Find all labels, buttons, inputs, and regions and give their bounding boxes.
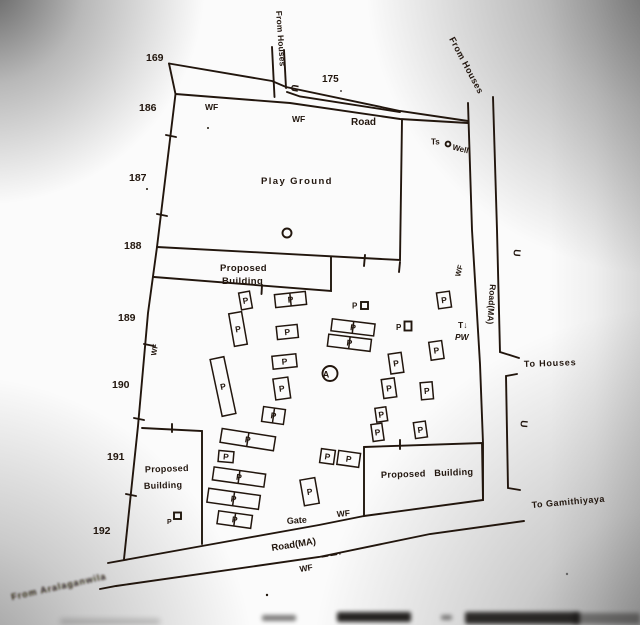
svg-text:T↓: T↓ (458, 320, 467, 330)
svg-text:Ts: Ts (431, 138, 440, 147)
svg-text:From Houses: From Houses (447, 35, 485, 95)
svg-text:P: P (378, 409, 385, 420)
svg-text:169: 169 (146, 52, 164, 64)
svg-text:Gate: Gate (286, 515, 307, 526)
svg-text:P: P (242, 295, 250, 306)
svg-text:P: P (345, 454, 352, 465)
svg-text:P: P (230, 493, 237, 504)
svg-text:P: P (244, 434, 251, 445)
svg-text:188: 188 (124, 240, 142, 252)
svg-text:WF: WF (299, 562, 314, 574)
svg-text:P: P (287, 294, 294, 305)
svg-text:P: P (424, 386, 431, 396)
svg-text:P: P (417, 424, 424, 435)
svg-text:P: P (278, 383, 285, 394)
svg-text:P: P (392, 358, 399, 369)
svg-text:To Gamithiyaya: To Gamithiyaya (531, 494, 605, 510)
svg-text:Proposed: Proposed (220, 263, 267, 274)
svg-text:Proposed Building: Proposed Building (381, 467, 474, 480)
svg-text:Road(MA): Road(MA) (271, 536, 317, 554)
svg-text:P: P (231, 514, 238, 525)
svg-text:U: U (288, 83, 300, 92)
svg-text:P: P (270, 410, 277, 421)
svg-text:Road: Road (351, 117, 376, 128)
svg-text:WF: WF (205, 102, 218, 112)
svg-text:WF: WF (292, 114, 305, 124)
svg-text:P: P (281, 356, 288, 367)
svg-text:192: 192 (93, 525, 111, 537)
svg-text:Well: Well (452, 143, 470, 156)
svg-text:190: 190 (112, 379, 130, 391)
svg-text:P: P (306, 486, 314, 497)
svg-text:P: P (219, 381, 227, 392)
svg-text:WF: WF (453, 264, 465, 278)
svg-text:P: P (223, 451, 230, 461)
svg-text:P: P (284, 327, 291, 338)
svg-text:PW: PW (455, 332, 470, 342)
svg-text:U: U (517, 420, 529, 428)
svg-text:P: P (440, 295, 447, 306)
svg-text:P: P (352, 302, 358, 311)
svg-text:From Houses: From Houses (274, 10, 288, 66)
svg-text:189: 189 (118, 312, 136, 324)
svg-text:P: P (374, 427, 381, 438)
svg-text:P: P (433, 345, 440, 356)
svg-text:To Houses: To Houses (524, 357, 577, 369)
svg-text:P: P (167, 519, 172, 526)
svg-text:From Aralaganwila: From Aralaganwila (10, 571, 107, 602)
svg-text:Proposed: Proposed (145, 463, 189, 475)
svg-text:P: P (346, 337, 353, 348)
svg-text:Building: Building (144, 480, 183, 491)
svg-text:175: 175 (322, 74, 339, 85)
svg-text:P: P (324, 451, 331, 462)
svg-text:A: A (323, 370, 330, 380)
svg-text:P: P (385, 383, 392, 394)
svg-text:U: U (510, 249, 522, 257)
svg-text:P: P (235, 472, 242, 483)
svg-text:186: 186 (139, 102, 157, 114)
svg-text:P: P (234, 324, 242, 335)
svg-text:P: P (396, 323, 402, 332)
svg-text:187: 187 (129, 172, 147, 184)
svg-text:P: P (350, 322, 357, 333)
svg-text:Play Ground: Play Ground (261, 176, 333, 187)
svg-text:191: 191 (107, 451, 125, 463)
svg-text:Building: Building (222, 276, 263, 287)
svg-text:WF: WF (149, 343, 160, 356)
svg-text:Road(MA): Road(MA) (485, 284, 498, 325)
svg-text:WF: WF (336, 508, 350, 519)
